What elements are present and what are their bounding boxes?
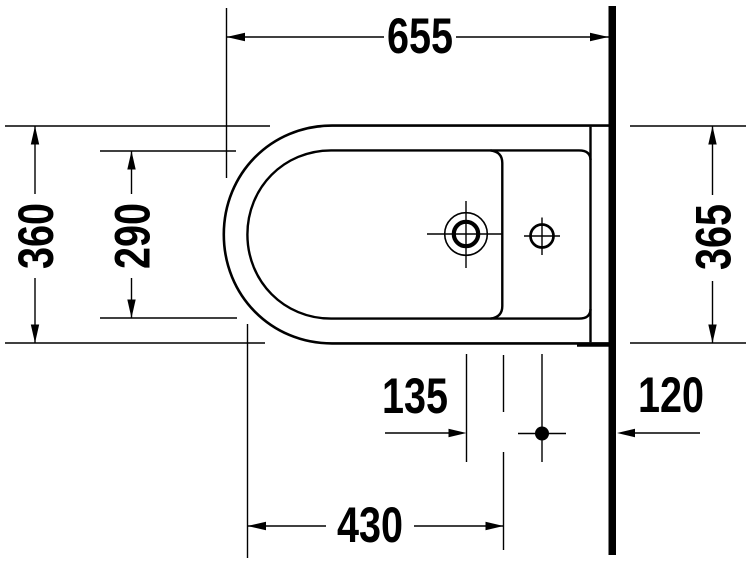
wall-line — [609, 6, 617, 555]
bidet-plan-drawing: 655 360 290 365 135 — [0, 0, 747, 563]
dim-120-label: 120 — [638, 367, 704, 423]
fixing-point-dot — [535, 427, 549, 441]
dim-655-label: 655 — [387, 8, 453, 64]
dim-430-label: 430 — [337, 497, 403, 553]
dim-135-label: 135 — [382, 368, 448, 424]
drawing-background — [0, 0, 747, 563]
dim-290-label: 290 — [105, 203, 161, 269]
dim-360-label: 360 — [8, 203, 64, 269]
technical-drawing-page: 655 360 290 365 135 — [0, 0, 747, 563]
dim-365-label: 365 — [686, 204, 742, 270]
